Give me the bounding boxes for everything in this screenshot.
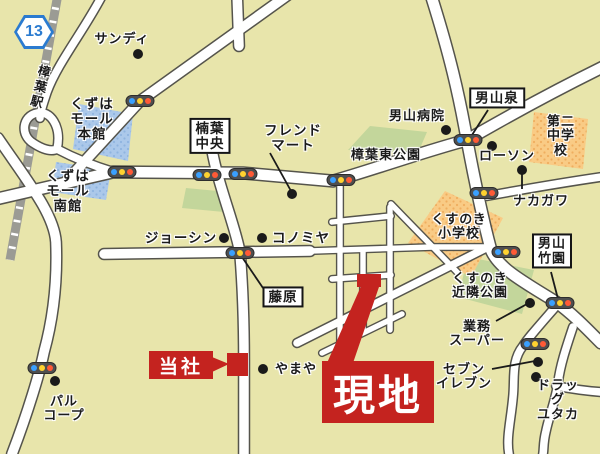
- label-kusunoki-elementary: くすのき 小学校: [431, 213, 487, 242]
- road-fills: [0, 0, 600, 454]
- poi-dot-seven-eleven: [533, 357, 543, 367]
- label-yamaya: やまや: [275, 362, 317, 376]
- traffic-light-icon: [470, 188, 498, 199]
- poi-dot-nakagawa: [517, 165, 527, 175]
- label-kuzuha-mall-main: くずは モール 本館: [70, 98, 114, 143]
- traffic-light-icon: [454, 135, 482, 146]
- label-palcoop: パル コープ: [43, 395, 84, 424]
- label-seven-eleven: セブン イレブン: [436, 363, 492, 392]
- label-nakagawa: ナカガワ: [513, 194, 569, 208]
- poi-dot-friend-mart: [287, 189, 297, 199]
- label-joshin: ジョーシン: [145, 232, 217, 247]
- traffic-light-icon: [327, 175, 355, 186]
- office-pointer: [212, 357, 229, 372]
- label-friend-mart: フレンド マート: [264, 124, 322, 154]
- site-rect: [357, 274, 381, 287]
- office-marker: [212, 353, 248, 376]
- poi-dot-palcoop: [50, 376, 60, 386]
- traffic-light-icon: [226, 248, 254, 259]
- route-13-number: 13: [17, 18, 51, 46]
- label-otokoyama-hospital: 男山病院: [389, 109, 445, 123]
- traffic-light-icon: [193, 170, 221, 181]
- office-rect: [227, 353, 248, 376]
- traffic-light-icon: [126, 96, 154, 107]
- label-fujiwara-intersection: 藤原: [263, 286, 304, 307]
- label-drug-yutaka: ドラッグ ユタカ: [537, 379, 579, 422]
- traffic-light-icon: [546, 298, 574, 309]
- poi-dot-sandy: [133, 49, 143, 59]
- traffic-light-icon: [28, 363, 56, 374]
- poi-dot-joshin: [219, 233, 229, 243]
- label-gyomu-super: 業務 スーパー: [449, 320, 505, 349]
- label-kuzuha-chuo-intersection: 楠葉 中央: [190, 118, 231, 154]
- label-sandy: サンディ: [94, 32, 149, 46]
- poi-dot-yamaya: [258, 364, 268, 374]
- label-kuzuha-mall-south: くずは モール 南館: [46, 170, 90, 215]
- traffic-light-icon: [492, 247, 520, 258]
- label-tosha-office: 当社: [149, 351, 213, 379]
- map-canvas: [0, 0, 600, 454]
- label-daini-junior-high: 第二 中学校: [542, 115, 581, 158]
- poi-dot-hospital: [441, 125, 451, 135]
- label-otokoyama-takezono-intersection: 男山 竹園: [532, 233, 572, 268]
- poi-dot-gyomu-super: [525, 298, 535, 308]
- traffic-light-icon: [229, 169, 257, 180]
- traffic-light-icon: [108, 167, 136, 178]
- label-kuzuha-higashi-park: 樟葉東公園: [351, 148, 421, 162]
- label-otokoyama-izumi-intersection: 男山泉: [469, 87, 525, 108]
- traffic-light-icon: [521, 339, 549, 350]
- label-genchi-site: 現地: [322, 361, 434, 423]
- access-map: 13 サンディ 樟葉駅 くずは モール 本館 くずは モール 南館 楠葉 中央 …: [0, 0, 600, 454]
- label-kusunoki-kinrin-park: くすのき 近隣公園: [452, 272, 508, 301]
- label-lawson: ローソン: [479, 149, 535, 163]
- label-konomiya: コノミヤ: [272, 232, 330, 247]
- poi-dot-konomiya: [257, 233, 267, 243]
